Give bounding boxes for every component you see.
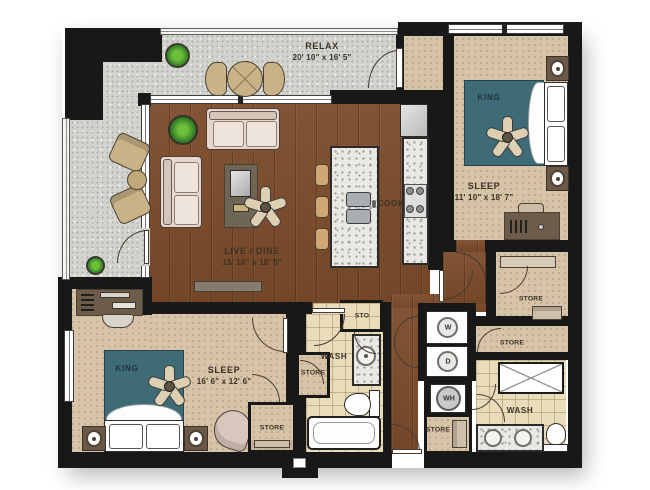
wall-store-hall-left bbox=[486, 252, 496, 326]
wall-kitchen-top bbox=[330, 90, 454, 104]
bedroom2-nightstand-left bbox=[82, 426, 106, 451]
bedroom1-door-opening bbox=[456, 240, 485, 252]
bath1-toilet-bowl bbox=[344, 393, 371, 416]
sleep2-name: SLEEP bbox=[208, 365, 241, 375]
wall-store-linen-bottom bbox=[476, 352, 568, 360]
wall-living-bottom-1 bbox=[138, 302, 312, 314]
bedroom1-desk-item bbox=[510, 220, 528, 233]
living-plant bbox=[168, 115, 198, 145]
bedroom1-desk-knob bbox=[538, 224, 544, 230]
bedroom1-lamp-bottom bbox=[550, 170, 565, 187]
bedroom2-king-label: KING bbox=[115, 364, 138, 374]
balcony-rail-left bbox=[62, 118, 70, 280]
bath2-toilet-bowl bbox=[546, 423, 566, 445]
wall-living-right bbox=[428, 96, 443, 270]
bedroom1-pillow-1 bbox=[547, 86, 565, 122]
bedroom1-king-label: KING bbox=[477, 93, 500, 103]
store-linen-label: STORE bbox=[500, 340, 524, 349]
bedroom1-nightstand-top bbox=[546, 56, 569, 81]
bedroom1-bed-fold bbox=[528, 82, 545, 164]
bedroom2-desk-paper-2 bbox=[112, 302, 136, 309]
loveseat-back bbox=[163, 159, 172, 225]
store-bedroom2-wall-label: STORE bbox=[301, 370, 325, 379]
sleep1-dims: 11' 10" x 18' 7" bbox=[455, 193, 514, 203]
bedroom2-door-leaf bbox=[283, 318, 288, 353]
relax-name: RELAX bbox=[305, 41, 339, 51]
burner-4 bbox=[416, 205, 424, 213]
island-sink-basin-2 bbox=[346, 209, 371, 224]
wall-bottom bbox=[58, 452, 582, 468]
bedroom1-nightstand-bottom bbox=[546, 166, 569, 191]
bedroom2-desk-item bbox=[81, 294, 94, 311]
cook-label: COOK bbox=[378, 199, 404, 209]
washer-label: W bbox=[445, 323, 452, 332]
balcony-rail-top bbox=[160, 28, 398, 35]
water-heater-label: WH bbox=[443, 394, 455, 403]
bedroom2-lamp-right bbox=[188, 430, 204, 447]
balcony-nook-door-leaf bbox=[396, 48, 403, 88]
living-ceiling-fan bbox=[242, 184, 286, 228]
balcony-storage-nook bbox=[404, 36, 443, 96]
bedroom2-pillow-2 bbox=[146, 424, 180, 449]
burner-1 bbox=[406, 187, 414, 195]
bath1-bathtub-basin bbox=[313, 422, 375, 444]
bar-stool-3 bbox=[315, 228, 329, 250]
store-entry-shelf bbox=[452, 420, 467, 448]
store-bedroom2-shelf bbox=[254, 440, 290, 448]
live-dine-name: LIVE / DINE bbox=[224, 246, 280, 256]
balcony-plant-top bbox=[165, 43, 190, 68]
relax-dims: 20' 10" x 16' 5" bbox=[292, 53, 351, 63]
living-hall-door-leaf bbox=[439, 270, 444, 302]
island-sink-basin-1 bbox=[346, 192, 371, 207]
bath2-sink-1 bbox=[484, 429, 502, 447]
patio-chair-right bbox=[263, 62, 285, 96]
wash2-label: WASH bbox=[507, 406, 533, 416]
sleep1-name: SLEEP bbox=[468, 181, 501, 191]
lounge-side-table bbox=[127, 170, 147, 190]
dryer-label: D bbox=[445, 357, 450, 366]
sleep2-dims: 16' 6" x 12' 6" bbox=[197, 377, 251, 387]
sofa-cushion-left bbox=[213, 121, 244, 147]
sofa-back bbox=[209, 111, 277, 120]
bedroom1-lamp-top bbox=[550, 60, 565, 77]
store-bedroom2-label: STORE bbox=[260, 425, 284, 434]
burner-2 bbox=[416, 187, 424, 195]
loveseat-cushion-1 bbox=[174, 162, 199, 193]
bedroom2-lamp-left bbox=[86, 430, 102, 447]
bar-stool-2 bbox=[315, 196, 329, 218]
bar-stool-1 bbox=[315, 164, 329, 186]
bedroom1-desk-chair bbox=[518, 203, 544, 213]
balcony-living-door-leaf bbox=[144, 230, 149, 264]
burner-3 bbox=[406, 205, 414, 213]
patio-chair-left bbox=[205, 62, 227, 96]
live-dine-label: LIVE / DINE 15' 10" x 18' 5" bbox=[222, 246, 281, 268]
bath2-shower bbox=[498, 362, 564, 394]
live-dine-dims: 15' 10" x 18' 5" bbox=[222, 258, 281, 268]
bedroom2-window bbox=[64, 330, 74, 402]
refrigerator bbox=[400, 104, 428, 137]
bedroom1-ceiling-fan bbox=[484, 114, 528, 158]
store-entry-label: STORE bbox=[426, 427, 450, 436]
wall-bath1-right bbox=[383, 302, 391, 453]
bedroom1-window-tick bbox=[502, 24, 507, 34]
bedroom2-pillow-1 bbox=[109, 424, 143, 449]
pillar-top-left-v bbox=[65, 28, 103, 120]
bath2-sink-2 bbox=[514, 429, 532, 447]
bath1-sink-drain bbox=[364, 354, 368, 358]
store-hall-label: STORE bbox=[519, 296, 543, 305]
bedroom2-nightstand-right bbox=[184, 426, 208, 451]
entry-door-leaf bbox=[392, 449, 422, 454]
bath2-toilet-tank bbox=[543, 444, 568, 452]
store-hall-shelf bbox=[532, 306, 562, 320]
wash1-label: WASH bbox=[321, 352, 347, 362]
floor-plan: RELAX 20' 10" x 16' 5" SLEEP 11' 10" x 1… bbox=[0, 0, 650, 490]
living-bench bbox=[194, 281, 262, 292]
patio-table bbox=[227, 61, 263, 97]
relax-label: RELAX 20' 10" x 16' 5" bbox=[292, 41, 351, 63]
bath1-door-leaf bbox=[312, 308, 345, 313]
wall-bottom-column-vent bbox=[293, 458, 306, 468]
island-faucet bbox=[372, 200, 376, 208]
balcony-plant-bottom bbox=[86, 256, 105, 275]
wall-bedroom1-left bbox=[443, 28, 454, 242]
loveseat-cushion-2 bbox=[174, 195, 199, 225]
sleep2-label: SLEEP 16' 6" x 12' 6" bbox=[197, 365, 251, 387]
sto-label: STO bbox=[355, 313, 369, 322]
sleep1-label: SLEEP 11' 10" x 18' 7" bbox=[455, 181, 514, 203]
entry-door-gap bbox=[392, 452, 424, 468]
bedroom2-ceiling-fan bbox=[146, 363, 190, 407]
bedroom2-desk-paper-1 bbox=[100, 292, 130, 298]
sofa-cushion-right bbox=[246, 121, 277, 147]
bath1-bathtub bbox=[307, 416, 381, 450]
bedroom1-pillow-2 bbox=[547, 126, 565, 162]
